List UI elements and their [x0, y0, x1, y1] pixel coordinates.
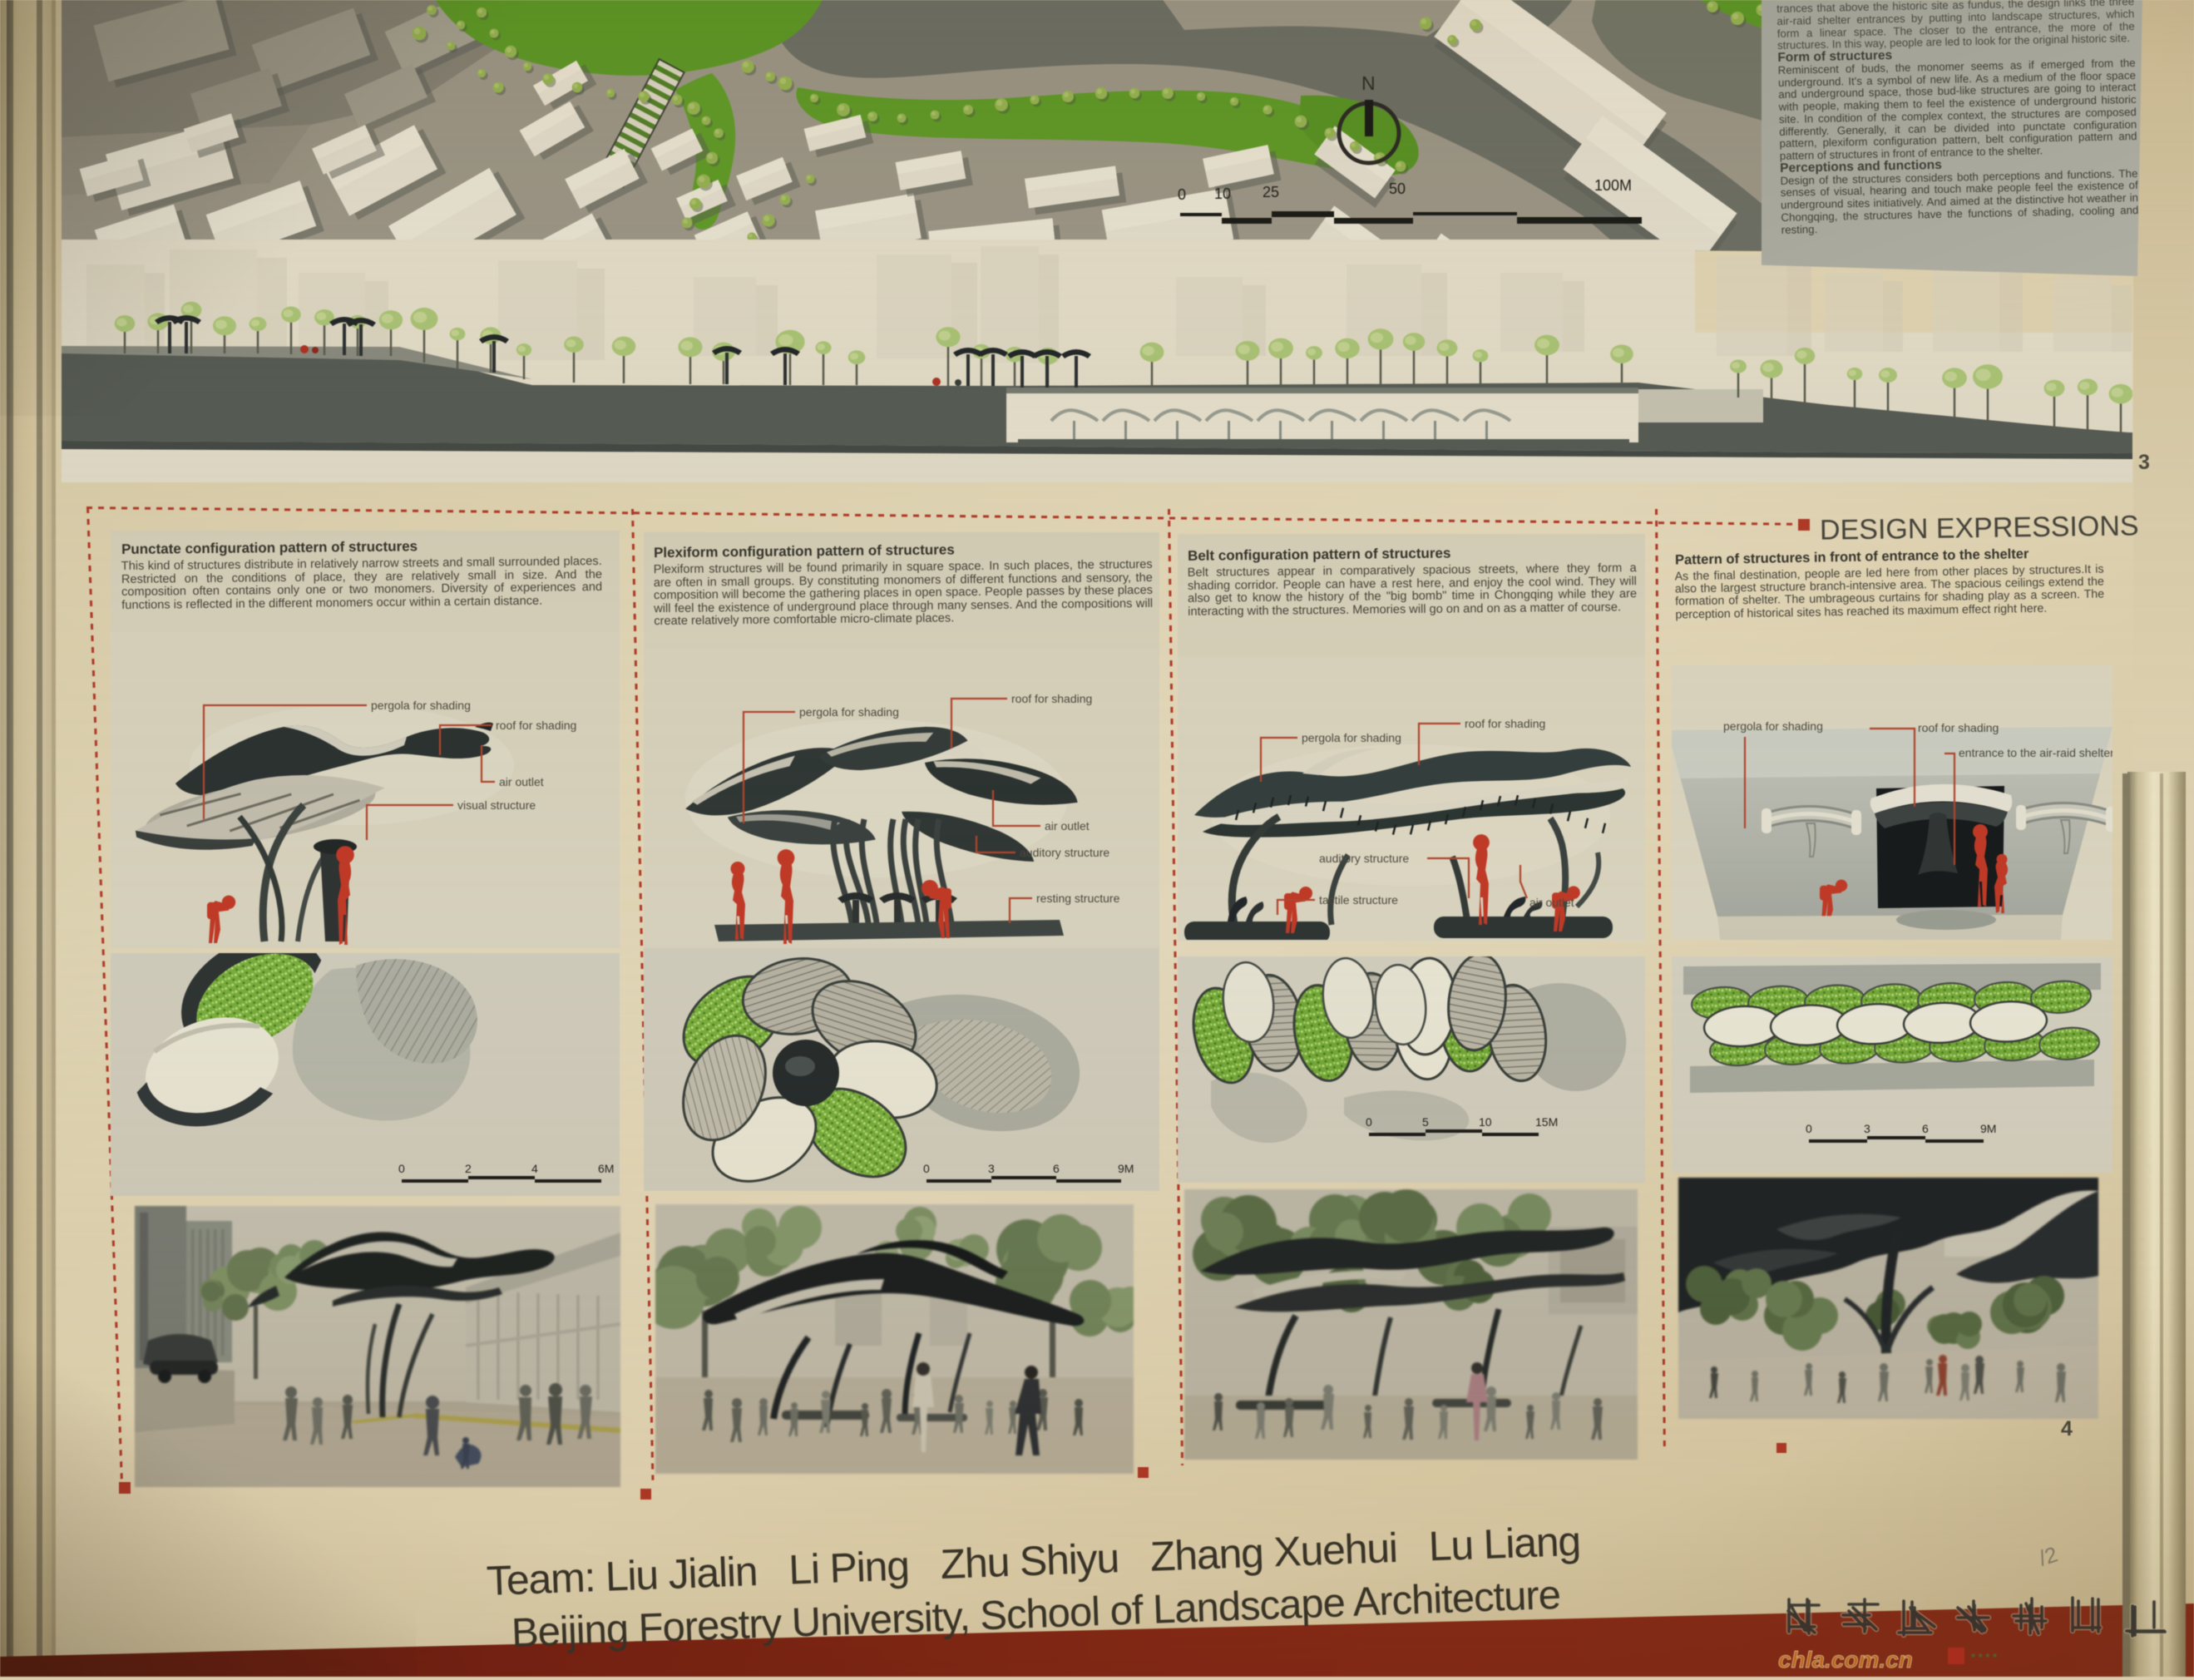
svg-text:air outlet: air outlet	[499, 775, 544, 788]
svg-text:air outlet: air outlet	[1045, 819, 1090, 833]
svg-text:5: 5	[1422, 1115, 1429, 1129]
svg-text:6: 6	[1922, 1122, 1929, 1135]
svg-text:pergola for shading: pergola for shading	[371, 699, 471, 712]
svg-text:25: 25	[1263, 184, 1279, 200]
svg-text:air outlet: air outlet	[1529, 896, 1574, 909]
svg-text:pergola for shading: pergola for shading	[799, 705, 899, 719]
svg-text:* * * *: * * * *	[1971, 1651, 1998, 1663]
svg-text:0: 0	[1366, 1115, 1372, 1129]
svg-text:roof for shading: roof for shading	[1918, 721, 1999, 734]
svg-text:roof for shading: roof for shading	[1465, 717, 1545, 730]
svg-text:100M: 100M	[1594, 177, 1632, 194]
svg-text:resting structure: resting structure	[1036, 892, 1120, 905]
svg-text:6M: 6M	[598, 1162, 614, 1175]
svg-text:auditory structure: auditory structure	[1020, 846, 1109, 859]
svg-text:entrance to the air-raid shelt: entrance to the air-raid shelter	[1959, 746, 2112, 759]
svg-text:0: 0	[1806, 1122, 1812, 1135]
svg-text:10: 10	[1214, 185, 1231, 202]
svg-text:3: 3	[988, 1162, 995, 1175]
svg-text:3: 3	[1864, 1122, 1870, 1135]
svg-text:N: N	[1361, 72, 1376, 94]
svg-text:10: 10	[1479, 1115, 1492, 1129]
svg-text:15M: 15M	[1535, 1115, 1558, 1129]
svg-text:6: 6	[1053, 1162, 1060, 1175]
svg-text:0: 0	[398, 1162, 405, 1175]
svg-text:4: 4	[531, 1162, 538, 1175]
svg-text:0: 0	[1178, 186, 1186, 203]
svg-text:9M: 9M	[1118, 1162, 1134, 1175]
svg-text:visual structure: visual structure	[457, 798, 536, 812]
svg-text:roof for shading: roof for shading	[1011, 692, 1092, 705]
svg-text:chla.com.cn: chla.com.cn	[1778, 1647, 1913, 1673]
svg-text:pergola for shading: pergola for shading	[1302, 731, 1401, 744]
svg-text:pergola for shading: pergola for shading	[1723, 719, 1823, 733]
svg-text:9M: 9M	[1980, 1122, 1996, 1135]
svg-text:0: 0	[923, 1162, 930, 1175]
svg-text:tactile structure: tactile structure	[1319, 893, 1398, 907]
svg-text:2: 2	[465, 1162, 472, 1175]
svg-text:roof for shading: roof for shading	[496, 719, 576, 732]
svg-text:auditory structure: auditory structure	[1319, 852, 1409, 865]
svg-text:50: 50	[1389, 180, 1406, 197]
